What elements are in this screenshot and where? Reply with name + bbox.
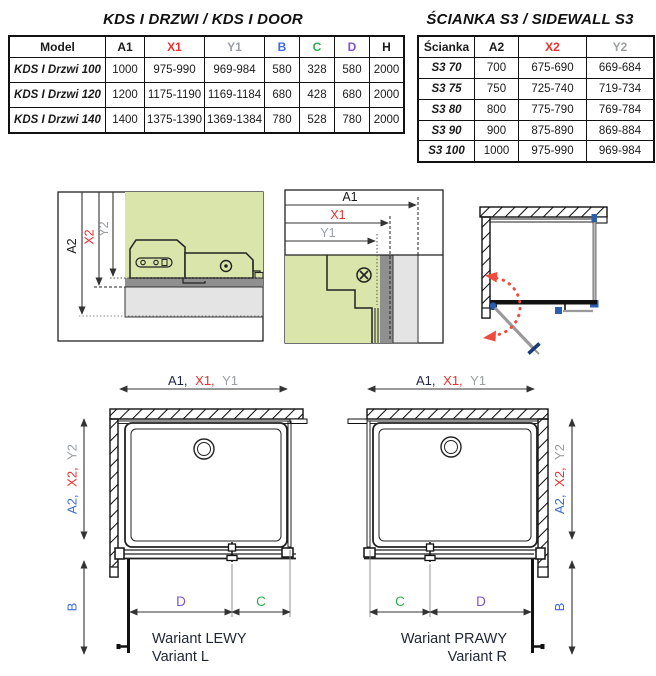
column-header: A1 <box>106 36 145 58</box>
value-cell: 725-740 <box>519 78 587 99</box>
value-cell: 775-790 <box>519 99 587 120</box>
wall-block <box>125 287 263 317</box>
bottom-rail <box>364 550 538 559</box>
value-cell: 1000 <box>475 141 519 162</box>
table-row: S3 75750725-740719-734 <box>418 78 654 99</box>
hinge-bracket <box>115 548 124 559</box>
value-cell: 875-890 <box>519 120 587 141</box>
sidewall-table-title: ŚCIANKA S3 / SIDEWALL S3 <box>408 11 652 28</box>
right-wall-end-piece <box>538 567 548 577</box>
column-header: D <box>335 36 370 58</box>
table-row: S3 90900875-890869-884 <box>418 120 654 141</box>
x2-label: X2 <box>83 229 97 244</box>
value-cell: 669-684 <box>587 57 655 78</box>
a2-label: A2 <box>65 238 79 253</box>
value-cell: 869-884 <box>587 120 655 141</box>
door-swing-arc <box>497 278 521 335</box>
sidewall-section-diagram: A2 X2 Y2 <box>30 183 270 348</box>
model-cell: KDS I Drzwi 120 <box>9 83 106 108</box>
value-cell: 975-990 <box>145 58 205 83</box>
a1-label: A1 <box>342 190 357 204</box>
value-cell: 900 <box>475 120 519 141</box>
model-cell: S3 80 <box>418 99 475 120</box>
c-dimension-label: C <box>256 594 266 609</box>
depth-dimension-label: A2, X2, Y2 <box>65 444 80 514</box>
top-wall-end-piece <box>348 419 367 424</box>
value-cell: 1400 <box>106 108 145 134</box>
wall-block <box>393 255 418 343</box>
spec-sheet: KDS I DRZWI / KDS I DOOR ŚCIANKA S3 / SI… <box>0 0 656 676</box>
door-dimensions-table: ModelA1X1Y1BCDHKDS I Drzwi 1001000975-99… <box>8 35 405 134</box>
d-dimension-label: D <box>476 594 486 609</box>
top-glass-edge <box>490 219 595 222</box>
pivot-assembly <box>227 542 237 562</box>
top-wall-end-piece <box>290 419 307 424</box>
top-wall <box>367 409 548 419</box>
model-cell: S3 70 <box>418 57 475 78</box>
column-header: C <box>300 36 335 58</box>
door-threshold <box>490 300 597 305</box>
top-wall <box>110 409 303 419</box>
top-wall <box>480 207 607 217</box>
left-wall <box>482 217 490 318</box>
x1-label: X1 <box>330 208 345 222</box>
value-cell: 428 <box>300 83 335 108</box>
model-cell: S3 75 <box>418 78 475 99</box>
value-cell: 969-984 <box>587 141 655 162</box>
value-cell: 975-990 <box>519 141 587 162</box>
header-row: ŚciankaA2X2Y2 <box>418 36 654 57</box>
column-header: A2 <box>475 36 519 57</box>
value-cell: 328 <box>300 58 335 83</box>
value-cell: 780 <box>265 108 300 134</box>
value-cell: 700 <box>475 57 519 78</box>
value-cell: 680 <box>265 83 300 108</box>
hinge-bracket <box>536 548 545 559</box>
variant-caption-en: Variant L <box>152 649 209 665</box>
value-cell: 1200 <box>106 83 145 108</box>
fixed-panel-bracket <box>282 548 293 557</box>
table-row: KDS I Drzwi 1001000975-990969-9845803285… <box>9 58 404 83</box>
value-cell: 1375-1390 <box>145 108 205 134</box>
variant-caption-pl: Wariant PRAWY <box>401 631 507 647</box>
left-wall-end-piece <box>110 567 118 577</box>
width-dimension-label: A1, X1, Y1 <box>416 376 486 388</box>
depth-dimension-label: A2, X2, Y2 <box>552 444 567 514</box>
variant-caption-pl: Wariant LEWY <box>152 631 247 647</box>
value-cell: 719-734 <box>587 78 655 99</box>
door-handle-knob <box>541 644 545 649</box>
model-cell: KDS I Drzwi 140 <box>9 108 106 134</box>
column-header: B <box>265 36 300 58</box>
value-cell: 528 <box>300 108 335 134</box>
drain-inner <box>198 443 211 456</box>
column-header: X2 <box>519 36 587 57</box>
drain-inner <box>445 441 458 454</box>
value-cell: 769-784 <box>587 99 655 120</box>
value-cell: 780 <box>335 108 370 134</box>
column-header: Model <box>9 36 106 58</box>
door-swing-plan-diagram <box>462 183 656 373</box>
value-cell: 1369-1384 <box>205 108 265 134</box>
door-handle-knob <box>117 644 121 649</box>
table-row: S3 1001000975-990969-984 <box>418 141 654 162</box>
open-door-panel <box>495 308 534 349</box>
door-section-diagram: A1 X1 Y1 <box>280 183 450 348</box>
value-cell: 800 <box>475 99 519 120</box>
table-row: S3 70700675-690669-684 <box>418 57 654 78</box>
variant-left-diagram: A1, X1, Y1 <box>60 376 350 676</box>
c-dimension-label: C <box>395 594 405 609</box>
wall-clamp-top <box>592 214 598 222</box>
wall-profile-strip <box>380 255 393 343</box>
column-header: Ścianka <box>418 36 475 57</box>
value-cell: 2000 <box>370 83 405 108</box>
value-cell: 580 <box>335 58 370 83</box>
swing-arrow-bottom <box>483 331 496 342</box>
value-cell: 2000 <box>370 58 405 83</box>
left-wall-end-piece <box>482 308 490 318</box>
door-table-title: KDS I DRZWI / KDS I DOOR <box>8 11 398 28</box>
sidewall-dimensions-table: ŚciankaA2X2Y2S3 70700675-690669-684S3 75… <box>417 35 655 163</box>
variant-caption-en: Variant R <box>448 649 507 665</box>
value-cell: 675-690 <box>519 57 587 78</box>
bottom-rail <box>118 550 296 559</box>
panel-clip <box>555 307 562 314</box>
table-row: KDS I Drzwi 14014001375-13901369-1384780… <box>9 108 404 134</box>
value-cell: 1000 <box>106 58 145 83</box>
variant-right-diagram: A1, X1, Y1 <box>330 376 620 676</box>
header-row: ModelA1X1Y1BCDH <box>9 36 404 58</box>
value-cell: 580 <box>265 58 300 83</box>
value-cell: 2000 <box>370 108 405 134</box>
value-cell: 750 <box>475 78 519 99</box>
b-dimension-label: B <box>552 603 567 612</box>
model-cell: S3 100 <box>418 141 475 162</box>
value-cell: 1175-1190 <box>145 83 205 108</box>
value-cell: 969-984 <box>205 58 265 83</box>
width-dimension-label: A1, X1, Y1 <box>168 376 238 388</box>
pivot-assembly <box>425 542 435 562</box>
table-row: S3 80800775-790769-784 <box>418 99 654 120</box>
column-header: Y1 <box>205 36 265 58</box>
side-glass-panel <box>593 222 596 302</box>
value-cell: 1169-1184 <box>205 83 265 108</box>
column-header: X1 <box>145 36 205 58</box>
table-row: KDS I Drzwi 12012001175-11901169-1184680… <box>9 83 404 108</box>
y2-label: Y2 <box>97 221 111 236</box>
model-cell: S3 90 <box>418 120 475 141</box>
value-cell: 680 <box>335 83 370 108</box>
y1-label: Y1 <box>320 226 335 240</box>
b-dimension-label: B <box>65 603 80 612</box>
column-header: Y2 <box>587 36 655 57</box>
fixed-panel-bracket <box>364 548 375 557</box>
d-dimension-label: D <box>176 594 186 609</box>
model-cell: KDS I Drzwi 100 <box>9 58 106 83</box>
column-header: H <box>370 36 405 58</box>
